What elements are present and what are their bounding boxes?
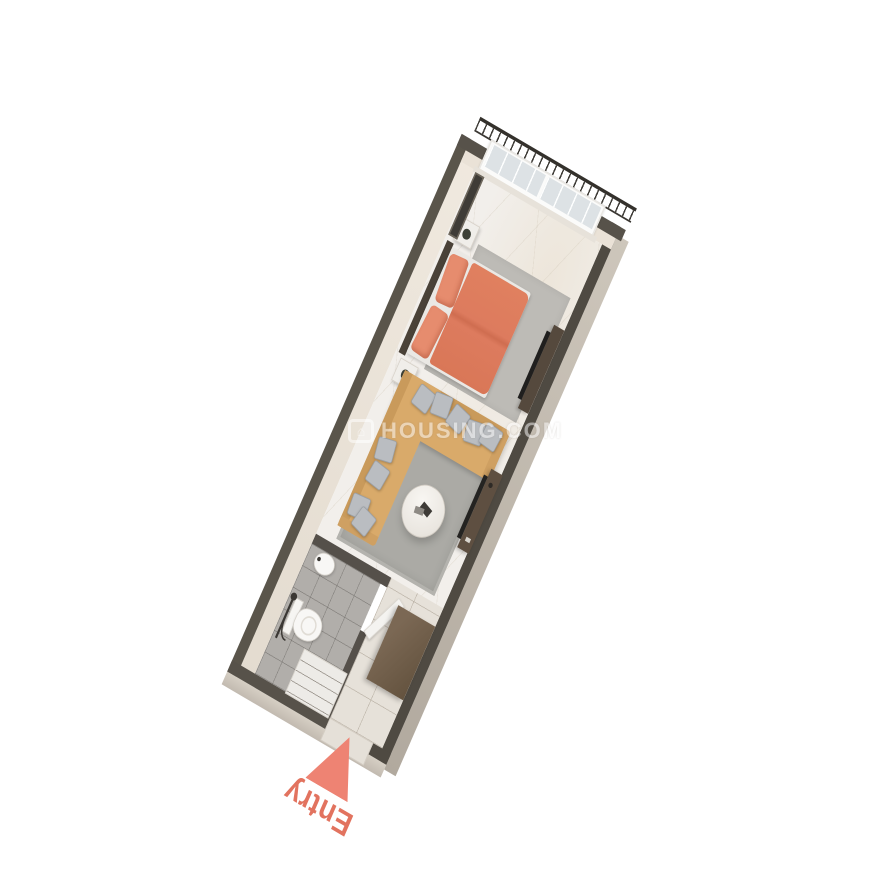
apartment-unit: Entry	[245, 158, 612, 760]
watermark-text: HOUSING.COM	[381, 418, 563, 444]
house-icon: ⌂	[348, 419, 374, 443]
floorplan-canvas: Entry ⌂ HOUSING.COM	[0, 0, 870, 870]
watermark: ⌂ HOUSING.COM	[348, 414, 568, 448]
plant-icon	[461, 227, 473, 241]
